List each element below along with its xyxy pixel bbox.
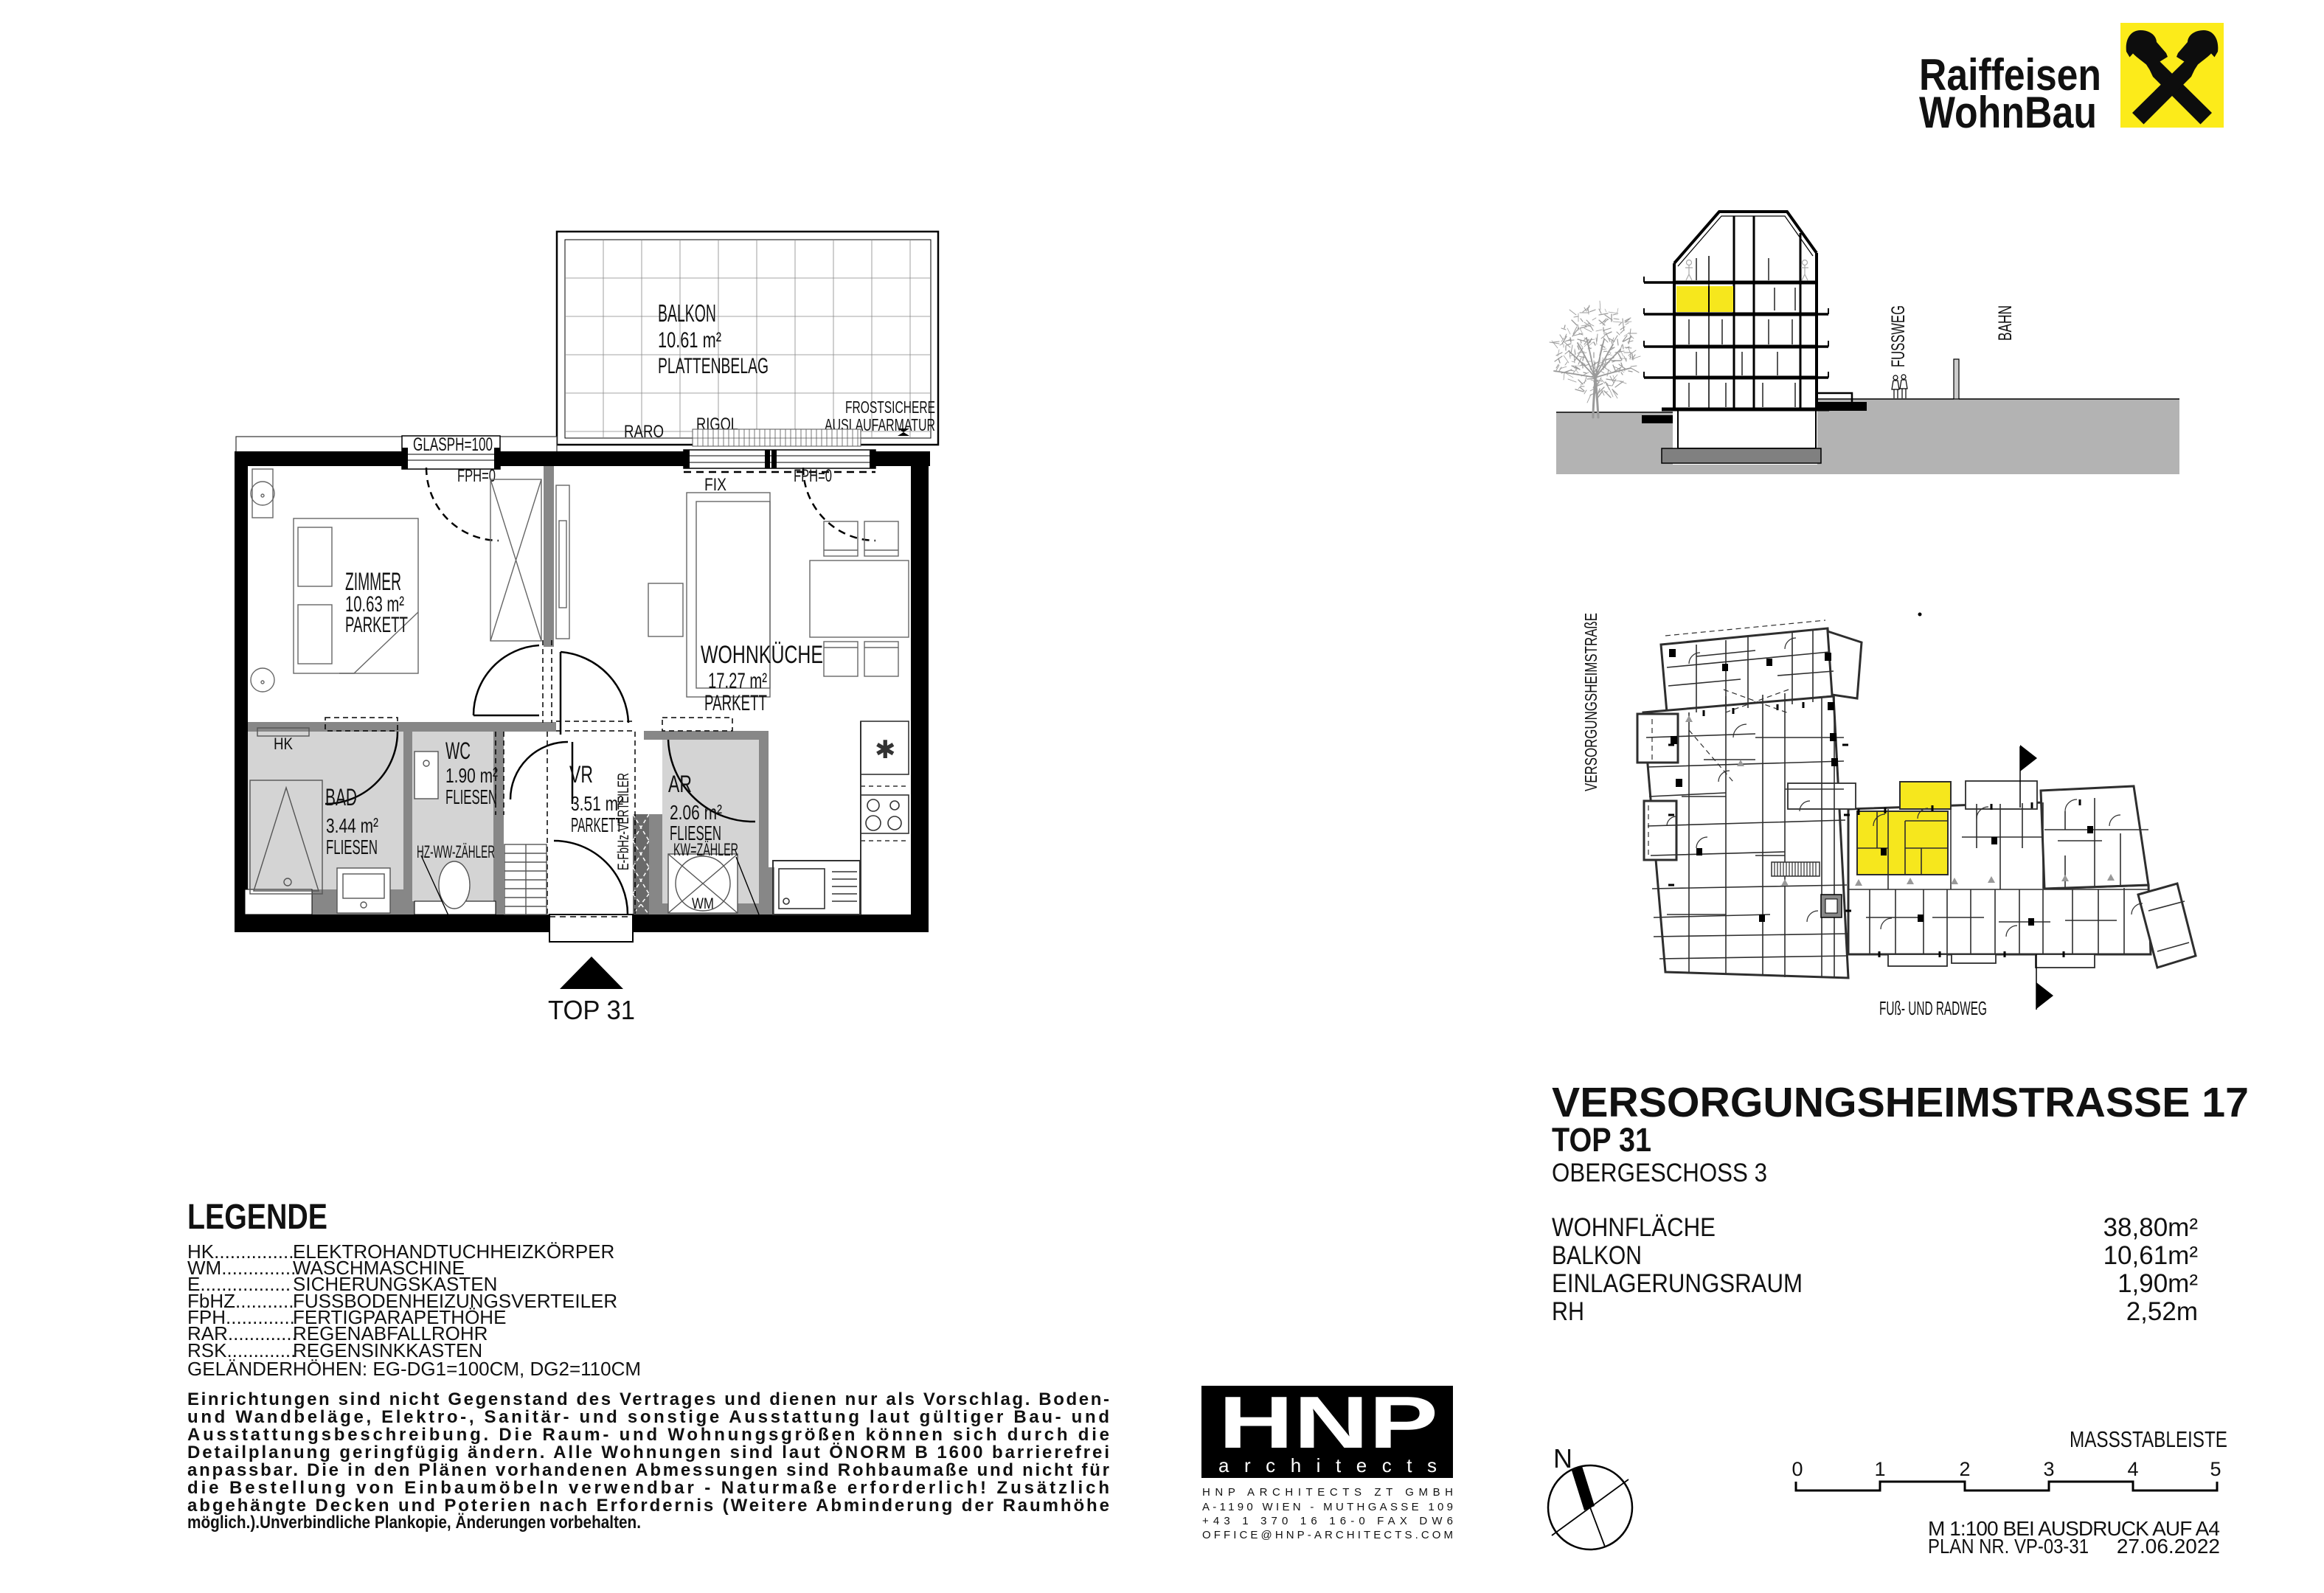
svg-text:1,90m²: 1,90m²: [2117, 1269, 2198, 1298]
svg-text:BAD: BAD: [325, 784, 357, 811]
svg-text:LEGENDE: LEGENDE: [187, 1198, 327, 1237]
svg-text:FLIESEN: FLIESEN: [445, 785, 497, 808]
svg-text:0: 0: [1791, 1458, 1803, 1480]
svg-text:1.90 m²: 1.90 m²: [445, 764, 498, 787]
svg-text:FIX: FIX: [704, 475, 726, 495]
svg-text:WM: WM: [692, 895, 714, 912]
svg-text:4: 4: [2127, 1458, 2138, 1480]
svg-text:10,61m²: 10,61m²: [2103, 1241, 2198, 1270]
svg-text:RH: RH: [1552, 1297, 1584, 1326]
svg-text:KW=ZÄHLER: KW=ZÄHLER: [673, 840, 738, 860]
svg-text:WOHNKÜCHE: WOHNKÜCHE: [701, 641, 823, 669]
svg-text:Detailplanung geringfügig ände: Detailplanung geringfügig ändern. Alle W…: [187, 1443, 1109, 1462]
svg-text:FROSTSICHERE: FROSTSICHERE: [845, 398, 935, 417]
svg-text:N: N: [1553, 1443, 1572, 1474]
svg-text:2.06 m²: 2.06 m²: [670, 801, 722, 824]
svg-text:AR: AR: [668, 771, 692, 797]
svg-text:VR: VR: [569, 761, 593, 788]
svg-text:TOP 31: TOP 31: [1552, 1121, 1651, 1159]
svg-text:PLAN NR. VP-03-31: PLAN NR. VP-03-31: [1928, 1535, 2089, 1558]
svg-text:A-1190 WIEN - MUTHGASSE 109: A-1190 WIEN - MUTHGASSE 109: [1202, 1501, 1453, 1513]
svg-text:+43 1 370 16 16-0 FAX DW6: +43 1 370 16 16-0 FAX DW6: [1202, 1515, 1453, 1527]
svg-text:GELÄNDERHÖHEN: EG-DG1=100CM, D: GELÄNDERHÖHEN: EG-DG1=100CM, DG2=110CM: [187, 1358, 641, 1380]
svg-text:anpassbar. Die in den Plänen v: anpassbar. Die in den Plänen vorhandenen…: [187, 1460, 1109, 1480]
svg-text:Einrichtungen sind nicht Gegen: Einrichtungen sind nicht Gegenstand des …: [187, 1389, 1109, 1409]
svg-text:HZ-WW-ZÄHLER: HZ-WW-ZÄHLER: [417, 842, 495, 862]
svg-text:WC: WC: [445, 737, 471, 764]
svg-text:möglich.).Unverbindliche Plank: möglich.).Unverbindliche Plankopie, Ände…: [187, 1513, 641, 1533]
svg-text:FPH=0: FPH=0: [457, 466, 496, 486]
svg-text:PARKETT: PARKETT: [345, 613, 408, 637]
svg-text:FUß- UND RADWEG: FUß- UND RADWEG: [1879, 997, 1987, 1019]
svg-text:✱: ✱: [875, 736, 896, 764]
svg-text:OFFICE@HNP-ARCHITECTS.COM: OFFICE@HNP-ARCHITECTS.COM: [1202, 1529, 1453, 1541]
svg-text:PARKETT: PARKETT: [704, 691, 767, 715]
svg-text:3: 3: [2043, 1458, 2054, 1480]
svg-text:5: 5: [2210, 1458, 2221, 1480]
svg-text:10.61 m²: 10.61 m²: [658, 328, 721, 353]
svg-text:FUSSWEG: FUSSWEG: [1888, 305, 1909, 367]
svg-text:2: 2: [1959, 1458, 1970, 1480]
svg-text:WohnBau: WohnBau: [1919, 88, 2097, 137]
svg-text:Ausstattungsbeschreibung. Die: Ausstattungsbeschreibung. Die Raum- und …: [187, 1425, 1109, 1445]
svg-text:OBERGESCHOSS 3: OBERGESCHOSS 3: [1552, 1159, 1767, 1187]
svg-text:FLIESEN: FLIESEN: [326, 836, 378, 858]
svg-text:BAHN: BAHN: [1995, 305, 2016, 341]
svg-text:38,80m²: 38,80m²: [2103, 1213, 2198, 1242]
svg-text:MASSSTABLEISTE: MASSSTABLEISTE: [2070, 1426, 2227, 1452]
svg-text:1: 1: [1874, 1458, 1885, 1480]
svg-text:HNP: HNP: [1218, 1381, 1438, 1464]
svg-text:und Wandbeläge, Elektro-, Sani: und Wandbeläge, Elektro-, Sanitär- und s…: [187, 1407, 1109, 1427]
svg-text:RARO: RARO: [624, 422, 664, 442]
svg-text:GLASPH=100: GLASPH=100: [413, 434, 493, 455]
svg-text:TOP 31: TOP 31: [548, 995, 635, 1025]
svg-text:BALKON: BALKON: [658, 299, 716, 327]
svg-text:WOHNFLÄCHE: WOHNFLÄCHE: [1552, 1213, 1716, 1242]
svg-text:PLATTENBELAG: PLATTENBELAG: [658, 354, 769, 378]
svg-text:E-FbHz-VERTEILER: E-FbHz-VERTEILER: [615, 773, 632, 870]
svg-text:2,52m: 2,52m: [2126, 1297, 2198, 1326]
svg-text:HK: HK: [274, 735, 293, 753]
svg-text:VERSORGUNGSHEIMSTRASSE 17: VERSORGUNGSHEIMSTRASSE 17: [1552, 1079, 2249, 1126]
svg-text:17.27 m²: 17.27 m²: [708, 669, 767, 693]
svg-text:BALKON: BALKON: [1552, 1241, 1642, 1270]
svg-text:VERSORGUNGSHEIMSTRAßE: VERSORGUNGSHEIMSTRAßE: [1581, 613, 1600, 791]
svg-text:die Bestellung von Einbaumöbel: die Bestellung von Einbaumöbeln verwendb…: [187, 1478, 1109, 1498]
svg-text:3.44 m²: 3.44 m²: [326, 814, 378, 837]
svg-text:FPH=0: FPH=0: [794, 466, 832, 486]
svg-text:EINLAGERUNGSRAUM: EINLAGERUNGSRAUM: [1552, 1269, 1803, 1298]
svg-text:27.06.2022: 27.06.2022: [2117, 1535, 2220, 1558]
svg-text:HNP ARCHITECTS ZT GMBH: HNP ARCHITECTS ZT GMBH: [1202, 1486, 1453, 1499]
